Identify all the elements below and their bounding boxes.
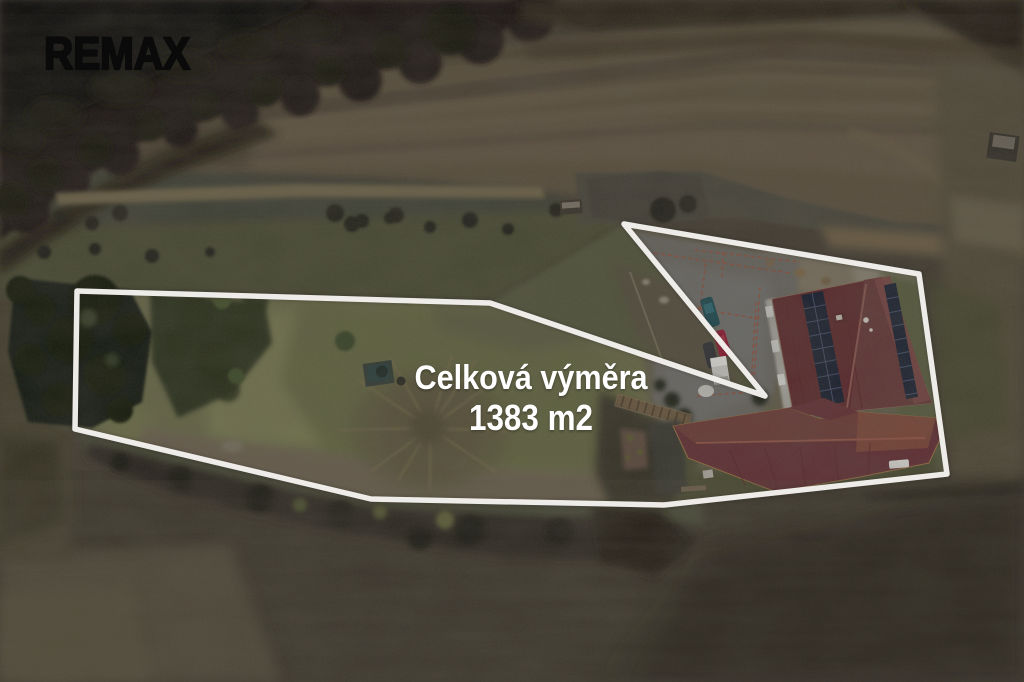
- svg-text:1383 m2: 1383 m2: [469, 397, 593, 438]
- svg-text:Celková výměra: Celková výměra: [415, 359, 649, 397]
- svg-text:REMAX: REMAX: [44, 28, 190, 79]
